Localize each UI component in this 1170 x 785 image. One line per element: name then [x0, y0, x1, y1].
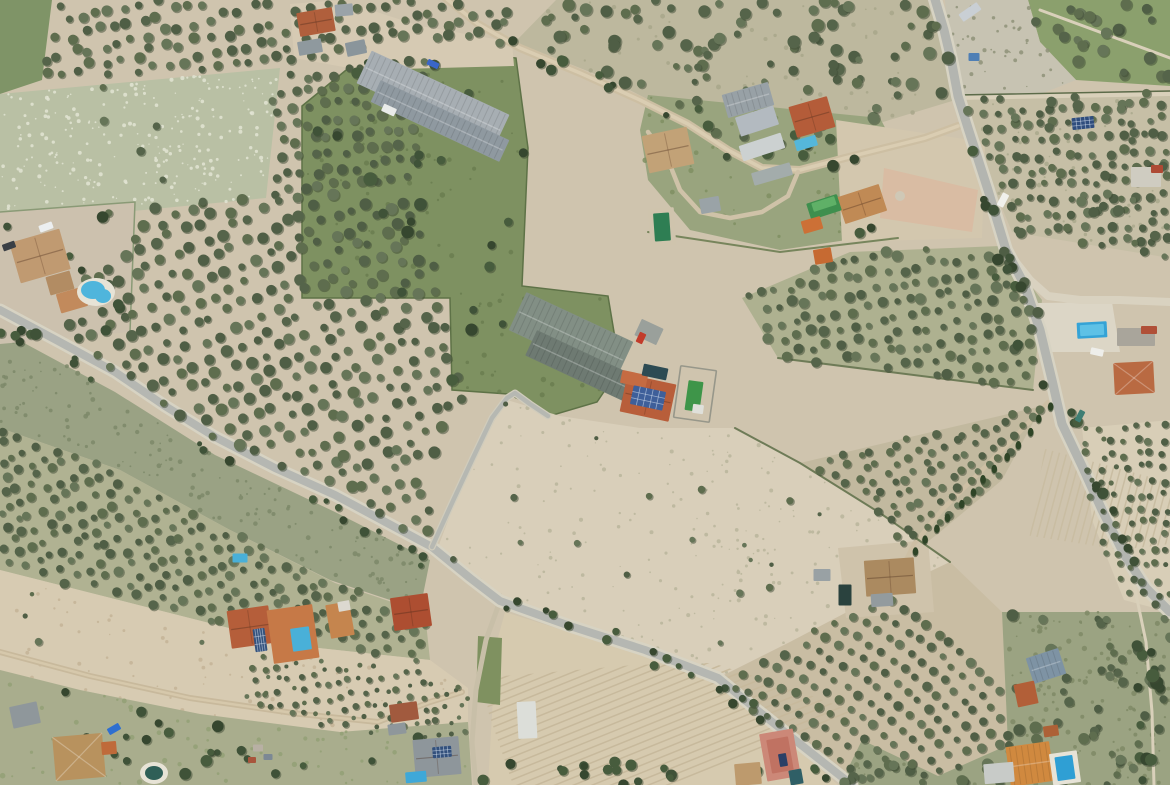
ne-orange-shed-2 — [813, 247, 833, 265]
aerial-photo-viewport — [0, 0, 1170, 785]
bl-junk-3 — [248, 757, 256, 763]
br-small-shed — [1043, 725, 1059, 738]
patio-fountain — [895, 191, 905, 201]
estate-pool-b — [95, 289, 111, 303]
complex-house-roof — [1113, 361, 1155, 395]
se-small-shed — [814, 569, 831, 581]
complex-pool-inner — [1080, 324, 1105, 336]
green-pool-hut — [692, 404, 704, 414]
right-edge-house-red — [1151, 165, 1163, 173]
bl-house-3-orange — [101, 741, 117, 755]
bc-pool — [405, 771, 427, 784]
bc-solar-panels — [432, 746, 452, 759]
garden-green-pool — [653, 212, 671, 241]
ne-solar-array — [1071, 116, 1094, 130]
bl-pool — [290, 626, 312, 651]
bl-house-1 — [227, 605, 274, 648]
junk-blue-tarp — [969, 53, 980, 61]
tan-roof-partial — [734, 762, 762, 785]
complex-building-red — [1141, 326, 1157, 334]
se-house-shed — [871, 593, 894, 608]
bc-red-house — [390, 593, 432, 631]
aerial-photo — [0, 0, 1170, 785]
bc-white-shed — [517, 701, 538, 739]
bl-small-pool — [233, 554, 248, 563]
se-dark-pool — [839, 585, 852, 606]
bl-house-2-white — [337, 600, 351, 612]
bl-oval-pool — [145, 766, 163, 780]
bl-junk-2 — [264, 754, 273, 760]
pink-pool — [788, 768, 803, 785]
br-white-shed — [983, 762, 1015, 785]
farm-shed-gray-2 — [335, 3, 354, 17]
br-pool — [1054, 755, 1075, 781]
bl-junk-1 — [253, 745, 263, 752]
se-house-roof — [864, 557, 916, 596]
bl-house-3 — [52, 733, 106, 781]
